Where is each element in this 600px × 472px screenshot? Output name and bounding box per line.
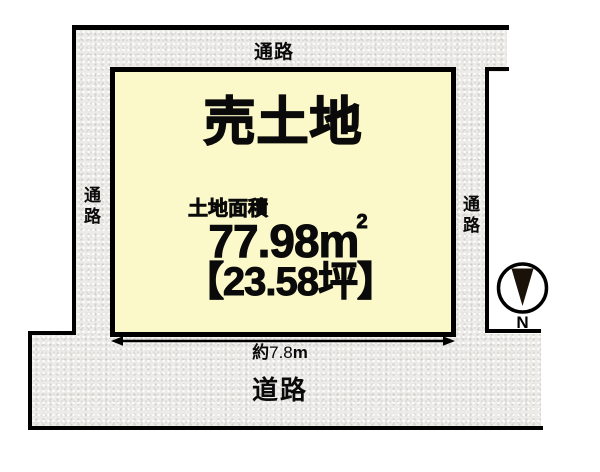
width-dimension-label: 約7.8m — [240, 344, 320, 361]
boundary-left-lower-line — [28, 331, 32, 430]
boundary-top-line — [72, 25, 510, 30]
land-area-tsubo: 【23.58坪】 — [115, 262, 451, 302]
passage-right-surface — [452, 29, 485, 334]
boundary-left-upper-line — [72, 25, 77, 335]
neighbor-north-line — [485, 67, 509, 71]
land-parcel: 売土地 土地面積 77.98m2 【23.58坪】 — [110, 67, 456, 337]
road-label: 道路 — [238, 377, 322, 403]
compass-north-letter: N — [516, 313, 528, 332]
compass-north-icon: N — [494, 259, 552, 333]
boundary-step-line — [28, 331, 76, 335]
passage-top-label: 通路 — [244, 43, 304, 62]
dimension-prefix: 約 — [252, 343, 269, 362]
site-plan-diagram: 売土地 土地面積 77.98m2 【23.58坪】 約7.8m 通路 通路 通路… — [0, 0, 600, 472]
land-area-m2: 77.98m2 — [115, 218, 451, 264]
dimension-value: 7.8 — [269, 343, 293, 362]
dimension-unit: m — [293, 343, 308, 362]
neighbor-west-line — [485, 67, 489, 333]
boundary-bottom-line — [28, 426, 543, 431]
passage-right-label: 通路 — [461, 195, 478, 237]
parcel-title: 売土地 — [115, 97, 451, 149]
land-area-m2-superscript: 2 — [356, 212, 367, 232]
passage-left-label: 通路 — [82, 186, 99, 228]
